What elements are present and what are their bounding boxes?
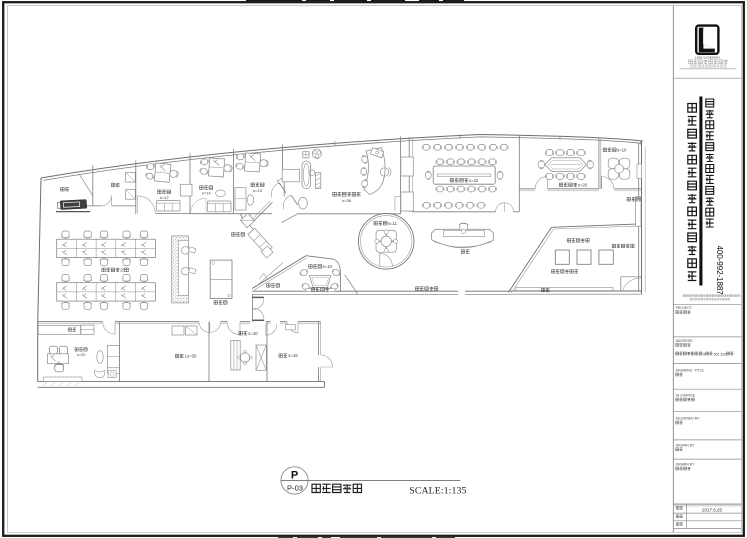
svg-text:DRAWN BY: DRAWN BY bbox=[676, 443, 695, 447]
svg-text:PROJECT: PROJECT bbox=[676, 306, 693, 310]
svg-text:s=11: s=11 bbox=[388, 221, 398, 226]
svg-text:Ls=30: Ls=30 bbox=[185, 354, 197, 359]
svg-text:s=14: s=14 bbox=[202, 191, 212, 196]
svg-text:ADDRESS: ADDRESS bbox=[676, 339, 694, 343]
svg-text:P: P bbox=[291, 470, 298, 482]
svg-text:DRAWING TITLE: DRAWING TITLE bbox=[676, 369, 705, 373]
svg-text:s=12: s=12 bbox=[160, 195, 170, 200]
svg-text:501,502: 501,502 bbox=[714, 352, 727, 356]
svg-text:LING QI DESIGN: LING QI DESIGN bbox=[695, 55, 720, 59]
svg-text:6: 6 bbox=[703, 352, 705, 356]
svg-text:2017.6.25: 2017.6.25 bbox=[702, 507, 723, 512]
svg-text:s=10: s=10 bbox=[323, 264, 333, 269]
svg-text:IN CHARGE: IN CHARGE bbox=[676, 394, 696, 398]
svg-text:s=15: s=15 bbox=[288, 353, 298, 358]
svg-text:s=20: s=20 bbox=[77, 353, 85, 357]
svg-text:s=42: s=42 bbox=[469, 178, 479, 183]
svg-text:s=10: s=10 bbox=[248, 331, 258, 336]
svg-text:SCALE:1:135: SCALE:1:135 bbox=[409, 486, 466, 497]
svg-text:s=15: s=15 bbox=[253, 188, 263, 193]
svg-text:s=20: s=20 bbox=[578, 182, 588, 187]
svg-text:DESIGNED BY: DESIGNED BY bbox=[676, 417, 701, 421]
svg-text:P-03: P-03 bbox=[287, 483, 303, 492]
svg-text:s=10: s=10 bbox=[617, 147, 627, 152]
svg-text:400-992-1887: 400-992-1887 bbox=[715, 246, 724, 296]
svg-text:s=36: s=36 bbox=[342, 198, 352, 203]
svg-text:DRAWN BY: DRAWN BY bbox=[676, 463, 695, 467]
